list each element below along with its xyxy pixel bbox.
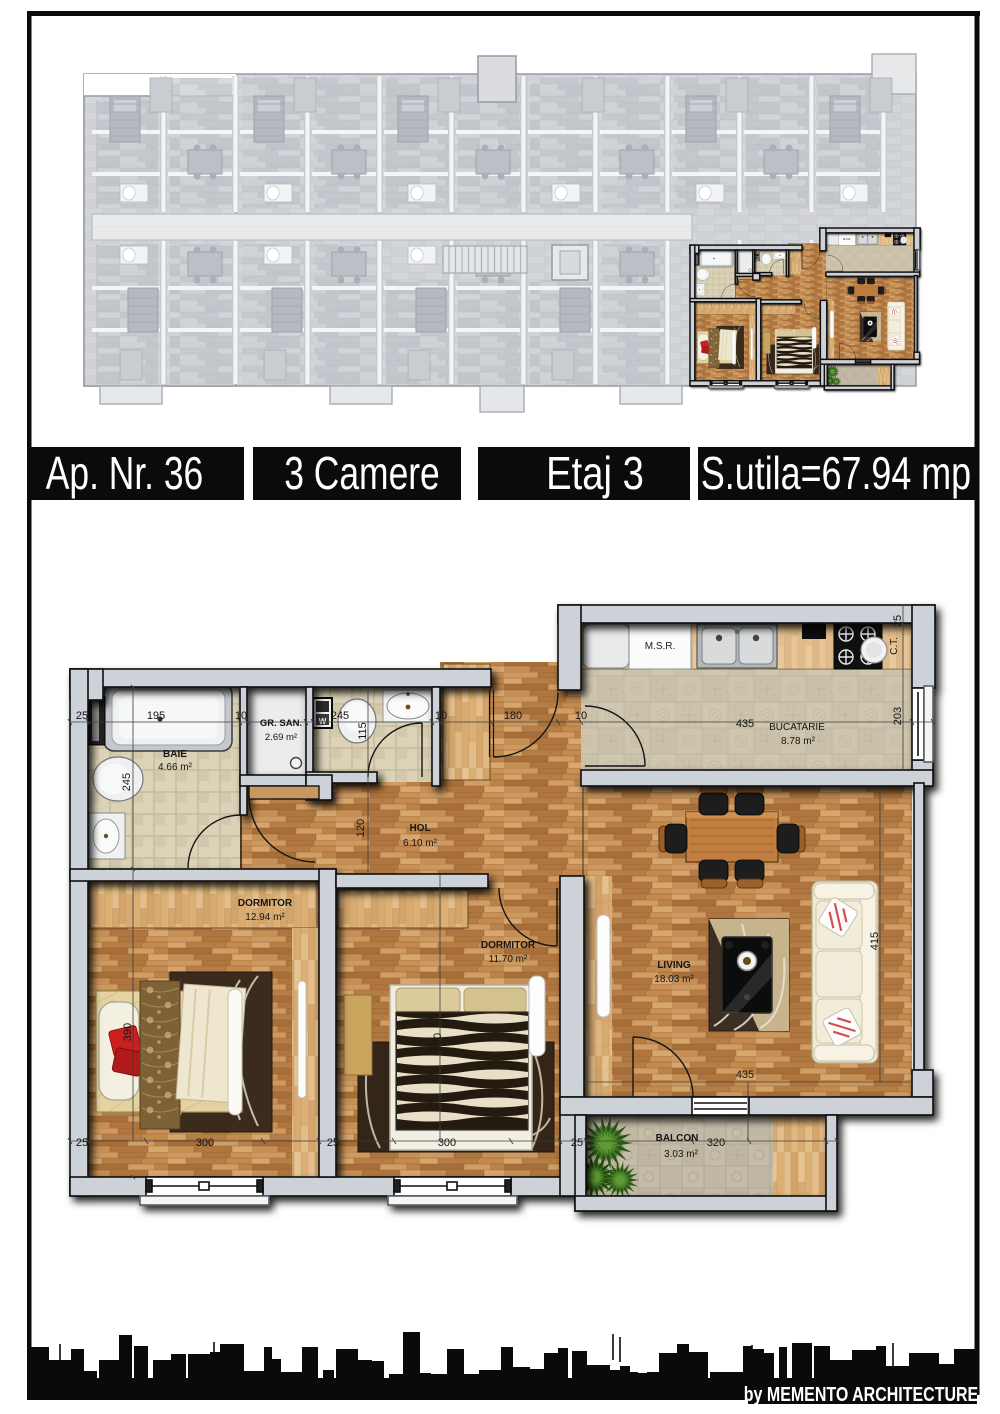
- svg-text:BALCON: BALCON: [656, 1133, 699, 1144]
- svg-text:HOL: HOL: [409, 823, 430, 834]
- svg-text:Etaj 3: Etaj 3: [546, 448, 644, 499]
- svg-text:203: 203: [892, 707, 904, 725]
- svg-text:10: 10: [575, 710, 587, 722]
- svg-text:300: 300: [196, 1137, 214, 1149]
- svg-text:18.03 m²: 18.03 m²: [654, 974, 694, 985]
- svg-text:25: 25: [76, 710, 88, 722]
- svg-text:195: 195: [147, 710, 165, 722]
- svg-text:115: 115: [357, 722, 369, 740]
- svg-text:8.78 m²: 8.78 m²: [781, 736, 816, 747]
- svg-text:11.70 m²: 11.70 m²: [489, 954, 528, 965]
- svg-text:LIVING: LIVING: [657, 960, 691, 971]
- svg-text:12.94 m²: 12.94 m²: [245, 912, 285, 923]
- svg-text:DORMITOR: DORMITOR: [481, 940, 536, 951]
- svg-text:10: 10: [235, 710, 247, 722]
- svg-text:10: 10: [435, 710, 447, 722]
- svg-text:245: 245: [121, 773, 133, 791]
- svg-text:390: 390: [432, 1033, 444, 1051]
- svg-text:W: W: [319, 717, 327, 726]
- svg-text:25: 25: [892, 615, 904, 627]
- svg-text:S.utila=67.94 mp: S.utila=67.94 mp: [701, 448, 971, 499]
- svg-text:DORMITOR: DORMITOR: [238, 898, 293, 909]
- svg-text:BAIE: BAIE: [163, 749, 187, 760]
- svg-text:GR. SAN.: GR. SAN.: [260, 718, 302, 729]
- svg-text:390: 390: [122, 1023, 134, 1041]
- svg-text:180: 180: [504, 710, 522, 722]
- svg-text:435: 435: [736, 718, 754, 730]
- svg-text:6.10 m²: 6.10 m²: [403, 838, 438, 849]
- svg-text:4.66 m²: 4.66 m²: [158, 762, 193, 773]
- svg-text:25: 25: [327, 1137, 339, 1149]
- svg-text:415: 415: [869, 932, 881, 950]
- svg-text:435: 435: [736, 1069, 754, 1081]
- svg-text:3 Camere: 3 Camere: [284, 448, 440, 500]
- svg-text:245: 245: [331, 710, 349, 722]
- svg-text:by MEMENTO ARCHITECTURE: by MEMENTO ARCHITECTURE: [744, 1382, 978, 1405]
- svg-text:120: 120: [355, 819, 367, 837]
- svg-text:25: 25: [76, 1137, 88, 1149]
- svg-text:2.69 m²: 2.69 m²: [265, 732, 297, 743]
- svg-text:Ap. Nr. 36: Ap. Nr. 36: [46, 448, 203, 500]
- svg-text:BUCATARIE: BUCATARIE: [769, 722, 825, 733]
- svg-text:300: 300: [438, 1137, 456, 1149]
- svg-text:3.03 m²: 3.03 m²: [664, 1149, 699, 1160]
- svg-text:320: 320: [707, 1137, 725, 1149]
- svg-text:C.T.: C.T.: [889, 637, 900, 655]
- svg-text:25: 25: [571, 1137, 583, 1149]
- svg-text:M.S.R.: M.S.R.: [645, 641, 676, 652]
